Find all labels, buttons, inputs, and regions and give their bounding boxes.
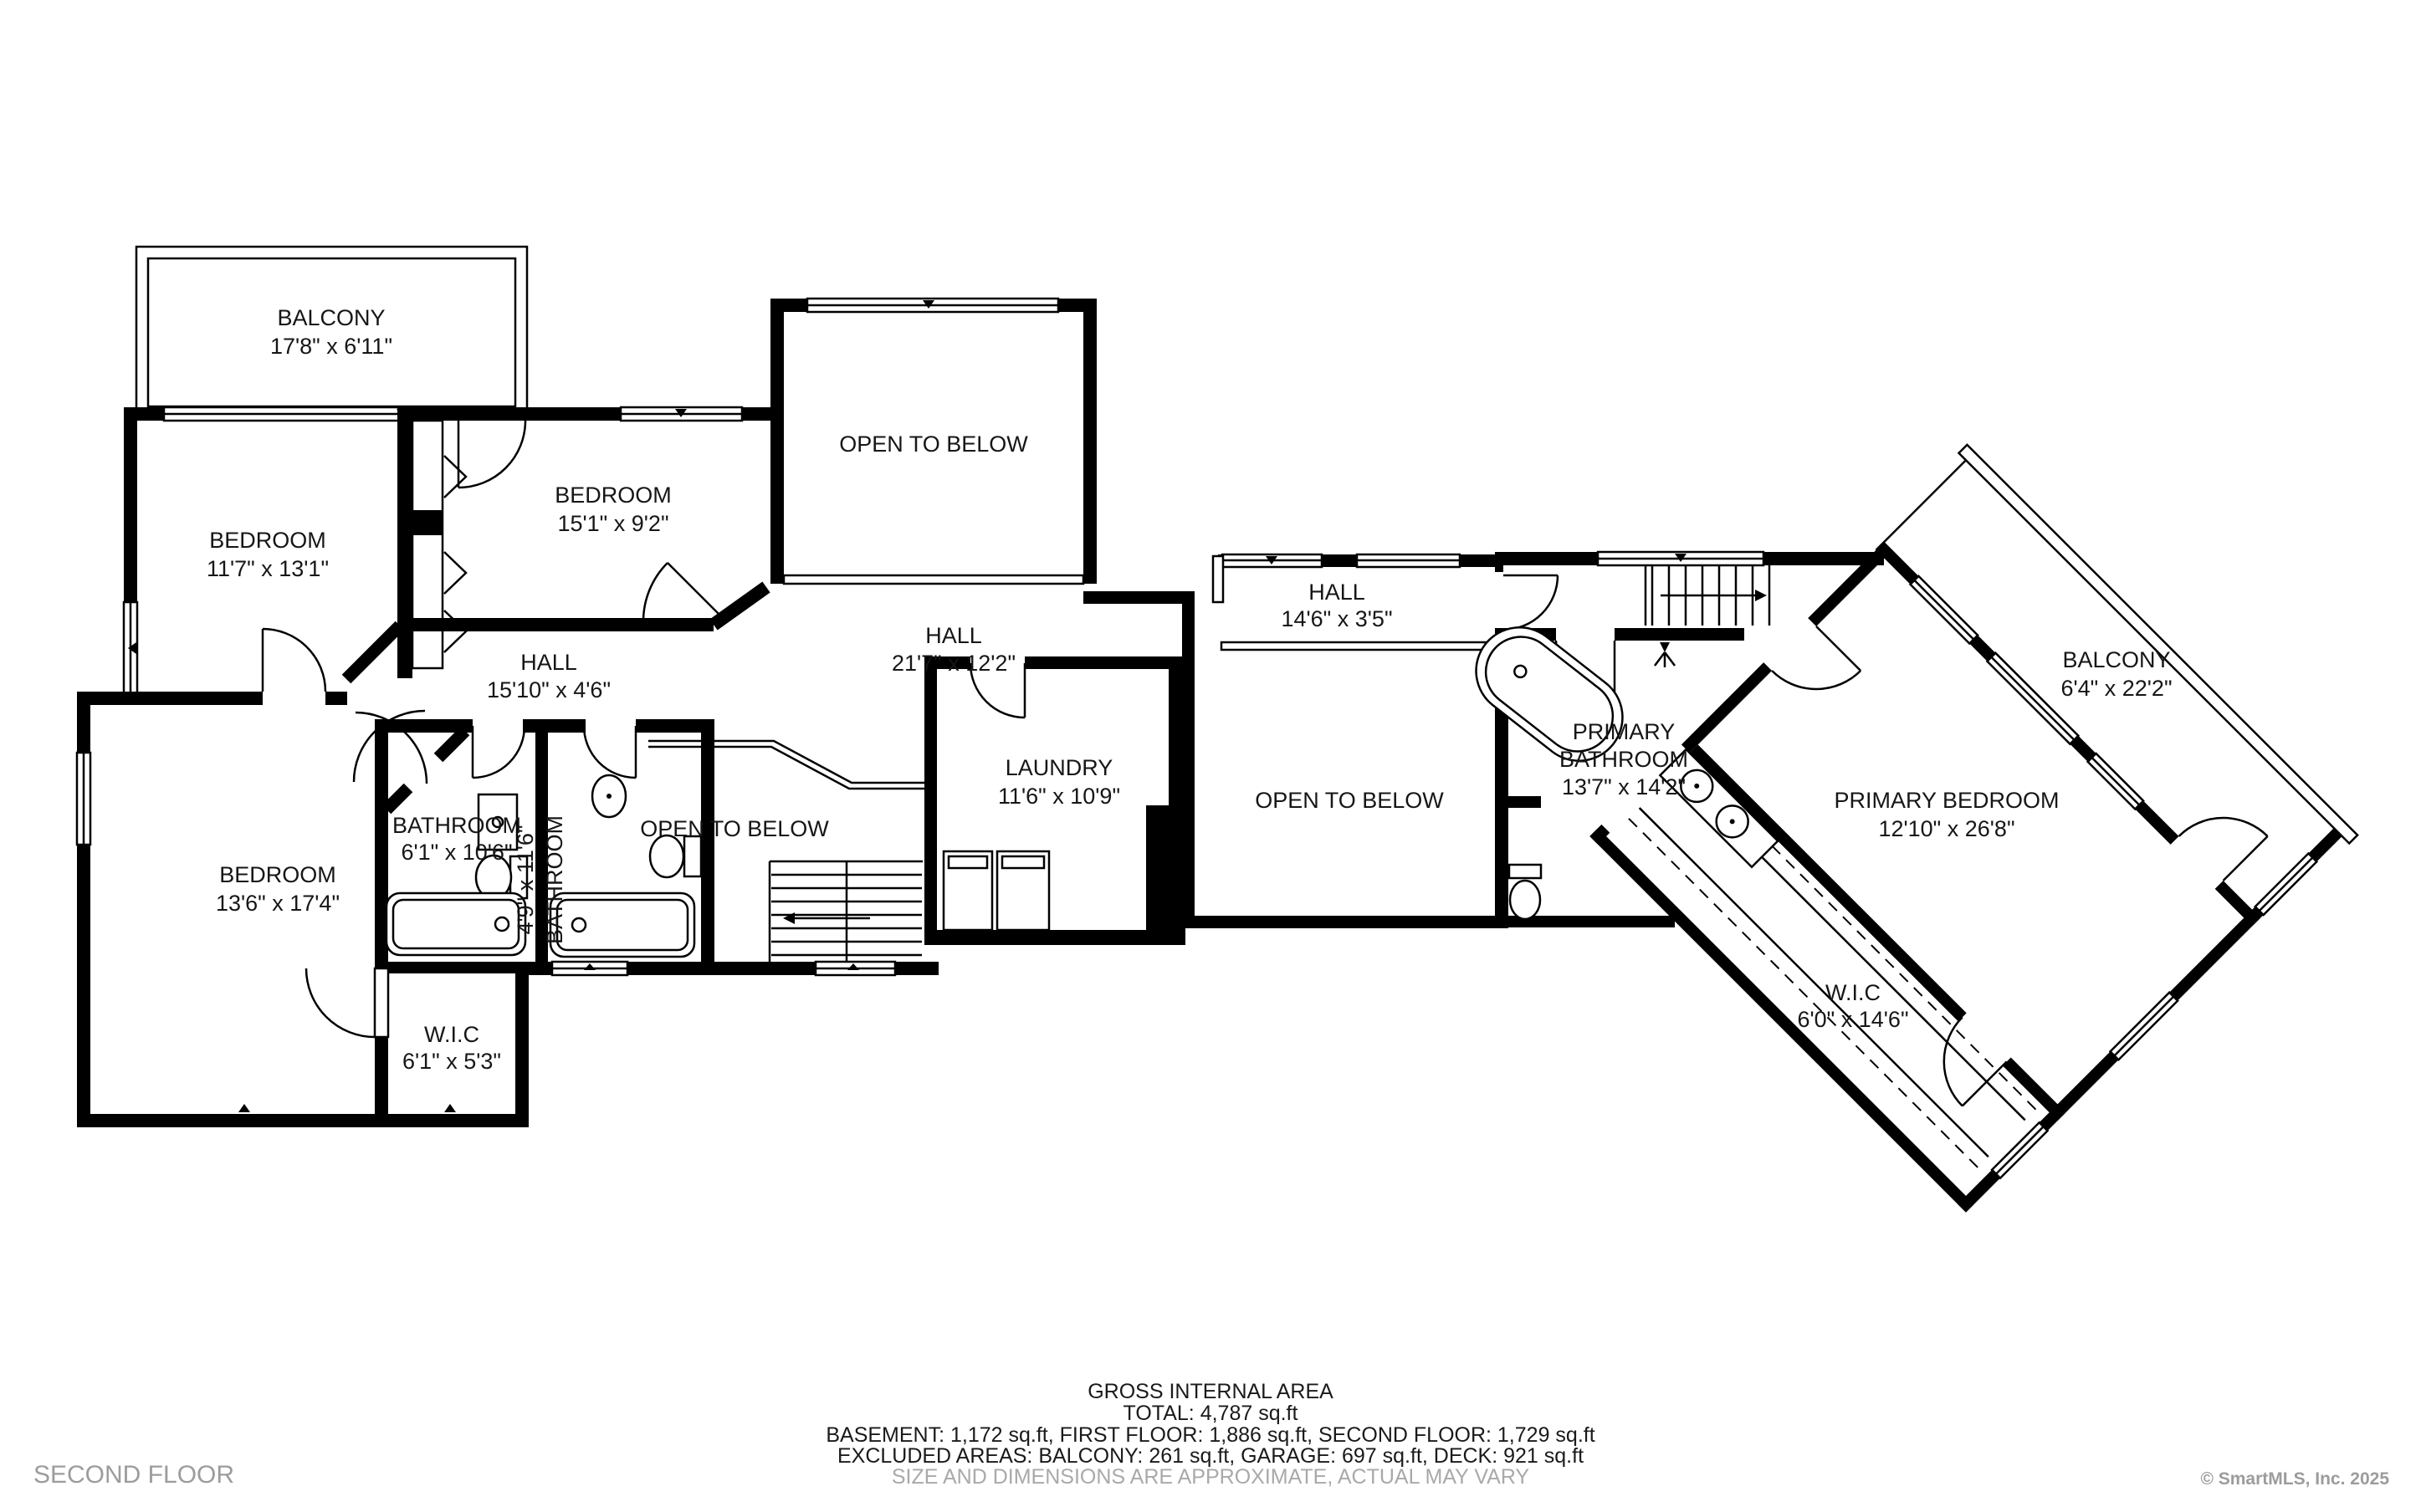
bathtub-icon: [550, 893, 694, 957]
room-label-primary-bathroom-2: BATHROOM: [1559, 747, 1688, 772]
room-label-open-below-middle: OPEN TO BELOW: [1255, 788, 1444, 813]
room-dims-bedroom-left: 11'7" x 13'1": [207, 556, 329, 581]
room-dims-wic-primary: 6'0" x 14'6": [1797, 1007, 1908, 1032]
toilet-icon: [1509, 865, 1541, 919]
room-dims-wic-hall: 6'1" x 5'3": [402, 1049, 501, 1074]
gross-area-title: GROSS INTERNAL AREA: [1088, 1380, 1333, 1403]
room-label-wic-hall: W.I.C: [424, 1022, 479, 1047]
disclaimer: SIZE AND DIMENSIONS ARE APPROXIMATE, ACT…: [892, 1465, 1530, 1489]
room-label-balcony-left: BALCONY: [277, 305, 385, 330]
room-label-primary-bedroom: PRIMARY BEDROOM: [1834, 788, 2059, 813]
room-label-open-below-left: OPEN TO BELOW: [640, 816, 829, 841]
room-dims-bedroom-top: 15'1" x 9'2": [557, 511, 668, 536]
window-icon: [77, 753, 90, 845]
room-dims-balcony-left: 17'8" x 6'11": [270, 334, 392, 359]
room-label-bedroom-lower: BEDROOM: [219, 862, 336, 887]
room-label-wic-primary: W.I.C: [1825, 980, 1881, 1005]
room-label-bedroom-top: BEDROOM: [555, 483, 672, 508]
room-dims-primary-bedroom: 12'10" x 26'8": [1878, 816, 2014, 841]
room-label-bathroom-inner: BATHROOM: [542, 815, 567, 944]
washer-icon: [944, 851, 992, 930]
room-dims-hall-left: 15'10" x 4'6": [487, 677, 611, 702]
bathtub-icon: [386, 893, 525, 955]
room-label-laundry: LAUNDRY: [1006, 755, 1113, 780]
room-dims-hall-upper: 14'6" x 3'5": [1281, 606, 1392, 631]
railing-icon: [784, 575, 1083, 584]
room-label-hall-left: HALL: [520, 650, 577, 675]
gross-area-breakdown: BASEMENT: 1,172 sq.ft, FIRST FLOOR: 1,88…: [826, 1423, 1594, 1447]
floor-plan-page: BALCONY 17'8" x 6'11" BEDROOM 11'7" x 13…: [0, 0, 2421, 1512]
room-label-bathroom-hall: BATHROOM: [392, 813, 521, 838]
railing-icon: [1221, 642, 1497, 650]
copyright-label: © SmartMLS, Inc. 2025: [2200, 1469, 2389, 1489]
room-dims-balcony-primary: 6'4" x 22'2": [2060, 676, 2172, 701]
room-dims-bathroom-inner: 4'9" x 11'6": [513, 825, 538, 934]
room-dims-primary-bathroom: 13'7" x 14'2": [1562, 774, 1686, 799]
room-label-open-below-top: OPEN TO BELOW: [839, 432, 1028, 457]
room-dims-bathroom-hall: 6'1" x 10'6": [401, 840, 512, 865]
chase-shaft: [1146, 805, 1185, 942]
room-label-primary-bathroom-1: PRIMARY: [1573, 719, 1676, 744]
room-label-bedroom-left: BEDROOM: [209, 528, 326, 553]
floor-name-label: SECOND FLOOR: [33, 1461, 234, 1489]
gross-area-total: TOTAL: 4,787 sq.ft: [1123, 1402, 1298, 1425]
room-dims-laundry: 11'6" x 10'9": [998, 784, 1120, 809]
excluded-areas: EXCLUDED AREAS: BALCONY: 261 sq.ft, GARA…: [837, 1444, 1584, 1468]
floor-plan-drawing: BALCONY 17'8" x 6'11" BEDROOM 11'7" x 13…: [0, 0, 2421, 1512]
room-label-hall-upper: HALL: [1308, 580, 1365, 605]
room-dims-hall-main: 21'7" x 12'2": [892, 651, 1016, 676]
dryer-icon: [997, 851, 1049, 930]
room-dims-bedroom-lower: 13'6" x 17'4": [216, 891, 340, 916]
room-label-balcony-primary: BALCONY: [2062, 647, 2170, 672]
background: [0, 0, 2421, 1512]
sink-icon: [592, 775, 626, 817]
room-label-hall-main: HALL: [925, 623, 982, 648]
toilet-icon: [650, 835, 701, 877]
